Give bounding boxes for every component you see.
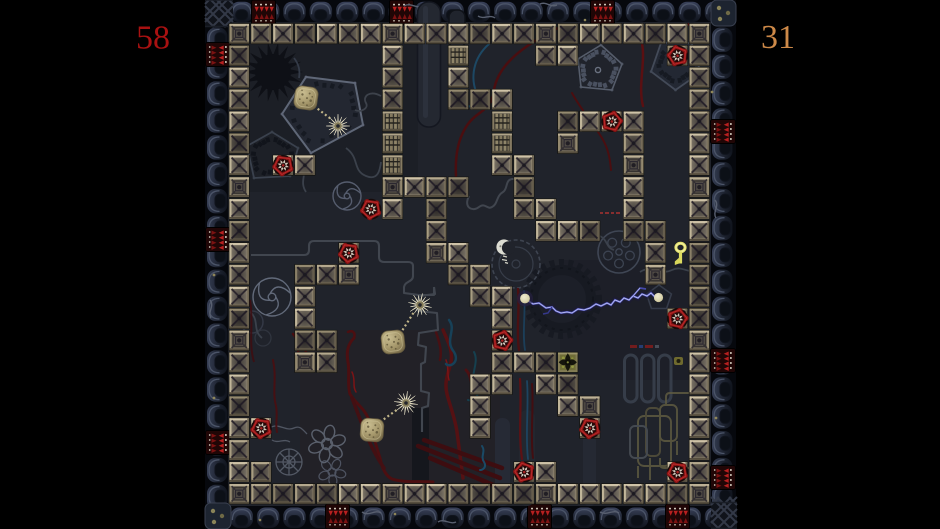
svg-text:58: 58 [136, 20, 170, 57]
svg-text:31: 31 [761, 19, 795, 56]
